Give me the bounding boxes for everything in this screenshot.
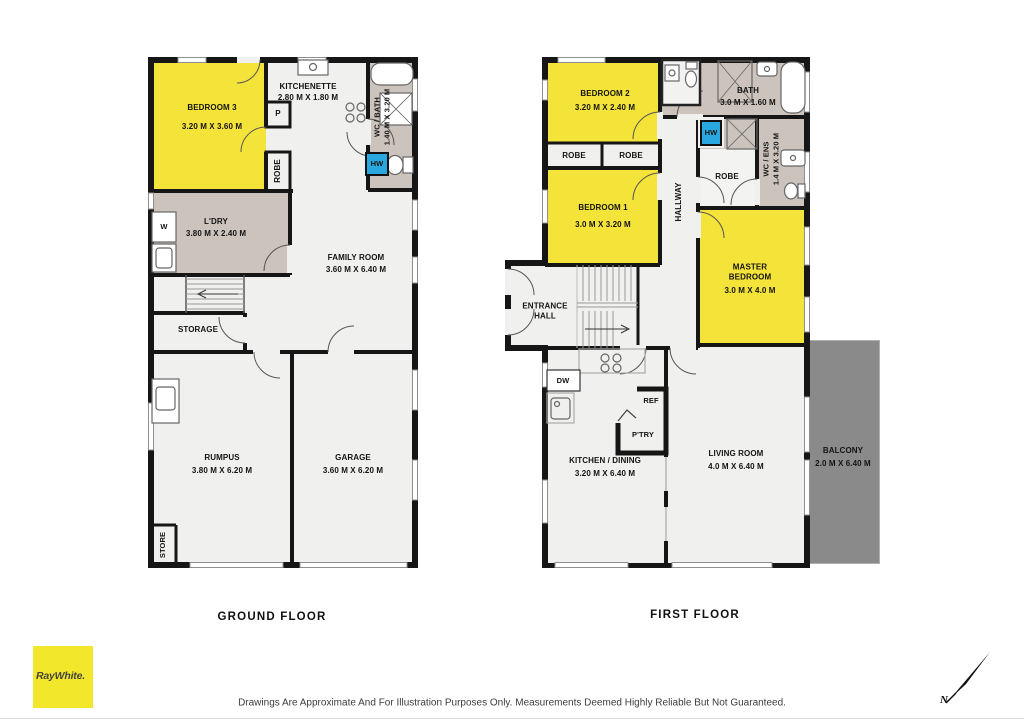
page-bottom-rule: [0, 718, 1024, 719]
laundry-label: L'DRY: [204, 217, 228, 227]
disclaimer-text: Drawings Are Approximate And For Illustr…: [238, 698, 786, 709]
entrance-hall-label: ENTRANCE HALL: [516, 302, 574, 323]
master-bedroom-dims: 3.0 M X 4.0 M: [724, 286, 775, 296]
store-label: STORE: [158, 532, 168, 558]
bedroom2-dims: 3.20 M X 2.40 M: [575, 103, 635, 113]
rumpus-basin-icon: [152, 379, 179, 423]
washer-label: W: [160, 222, 167, 232]
robe-label: ROBE: [273, 159, 283, 183]
bedroom2-label: BEDROOM 2: [580, 89, 629, 99]
master-bedroom-label: MASTER BEDROOM: [718, 263, 782, 284]
garage-dims: 3.60 M X 6.20 M: [323, 466, 383, 476]
laundry-dims: 3.80 M X 2.40 M: [186, 229, 246, 239]
stairs-icon: [186, 275, 244, 313]
floorplan-canvas: BEDROOM 3 3.20 M X 3.60 M KITCHENETTE 2.…: [0, 0, 1024, 725]
ptry-label: P'TRY: [632, 430, 654, 440]
north-arrow: N: [938, 646, 1002, 710]
balcony-dims: 2.0 M X 6.40 M: [815, 459, 871, 469]
kitchenette-label: KITCHENETTE: [279, 82, 336, 92]
sink-icon: [298, 60, 328, 75]
wc-bath-label: WC / BATH 1.40 M X 3.20 M: [372, 89, 392, 146]
ground-floor-plan: BEDROOM 3 3.20 M X 3.60 M KITCHENETTE 2.…: [148, 57, 418, 568]
family-label: FAMILY ROOM: [328, 253, 385, 263]
north-label: N: [940, 694, 948, 706]
ref-label: REF: [643, 396, 658, 406]
rumpus-label: RUMPUS: [204, 453, 239, 463]
bedroom3-label: BEDROOM 3: [187, 103, 236, 113]
wc-ens-label: WC / ENS 1.4 M X 3.20 M: [761, 133, 781, 185]
room-bath: [660, 60, 807, 117]
raywhite-logo: RayWhite.: [33, 646, 93, 708]
garage-label: GARAGE: [335, 453, 371, 463]
ground-floor-caption: GROUND FLOOR: [218, 611, 327, 623]
first-floor-caption: FIRST FLOOR: [650, 609, 740, 621]
hw-label: HW: [371, 159, 384, 169]
living-label: LIVING ROOM: [709, 449, 764, 459]
robe-a-label: ROBE: [562, 151, 586, 161]
bath-dims: 3.0 M X 1.60 M: [720, 98, 776, 108]
storage-label: STORAGE: [178, 325, 218, 335]
balcony-label: BALCONY: [823, 446, 863, 456]
kitchen-label: KITCHEN / DINING: [569, 456, 641, 466]
bedroom1-label: BEDROOM 1: [578, 203, 627, 213]
cooktop-icon: [346, 103, 365, 122]
raywhite-logo-text: RayWhite.: [36, 670, 85, 682]
room-bedroom2: [547, 60, 660, 143]
hw-label: HW: [705, 128, 718, 138]
hallway-label: HALLWAY: [674, 182, 684, 221]
bedroom1-dims: 3.0 M X 3.20 M: [575, 220, 631, 230]
dw-label: DW: [557, 376, 570, 386]
robe-master-label: ROBE: [715, 172, 739, 182]
pantry-label: P: [275, 109, 280, 119]
bath-label: BATH: [737, 86, 759, 96]
kitchen-dims: 3.20 M X 6.40 M: [575, 469, 635, 479]
first-floor-plan: BEDROOM 2 3.20 M X 2.40 M ROBE ROBE BEDR…: [505, 57, 880, 568]
bedroom3-dims: 3.20 M X 3.60 M: [182, 122, 242, 132]
kitchenette-dims: 2.80 M X 1.80 M: [278, 93, 338, 103]
room-bedroom1: [547, 168, 660, 265]
robe-b-label: ROBE: [619, 151, 643, 161]
living-dims: 4.0 M X 6.40 M: [708, 462, 764, 472]
rumpus-dims: 3.80 M X 6.20 M: [192, 466, 252, 476]
family-dims: 3.60 M X 6.40 M: [326, 265, 386, 275]
